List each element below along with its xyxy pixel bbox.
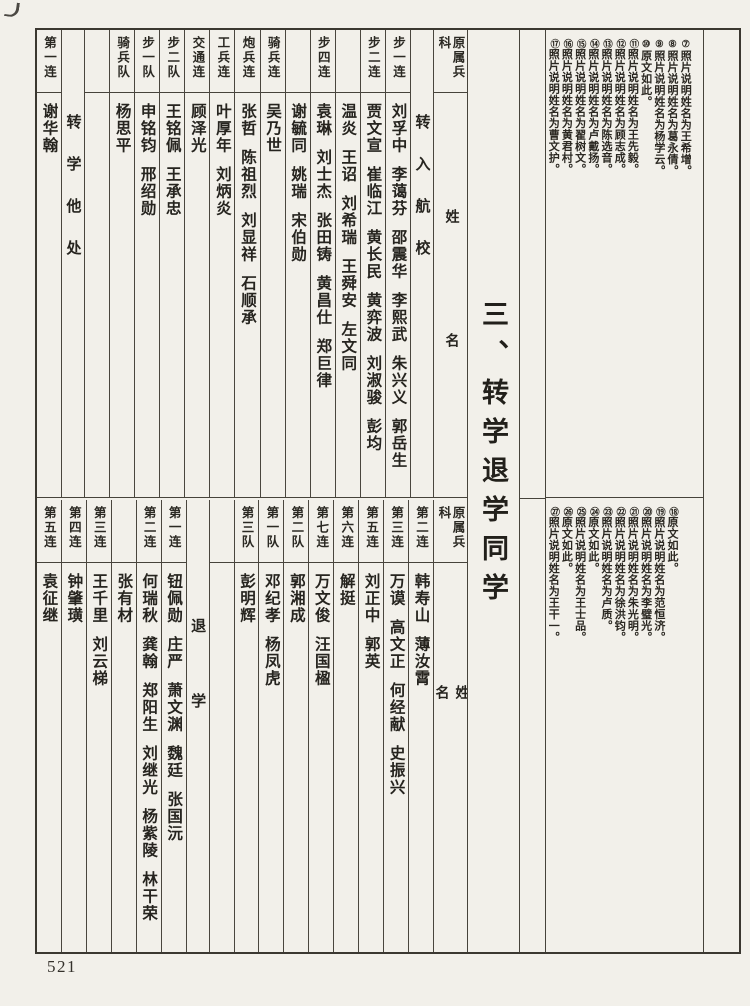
spacer-divider: [520, 498, 545, 499]
names-list: 王千里刘云梯: [90, 573, 107, 953]
student-name: 贾文宣: [364, 103, 381, 154]
book-page: 原属兵科姓名转入航校步一连刘孚中李蔼芬邵震华李熙武朱兴义郭岳生步二连贾文宣崔临江…: [0, 0, 750, 1006]
student-name: 刘孚中: [389, 103, 406, 154]
unit-column: 步四连袁琳刘士杰张田铸黄昌仕郑巨律: [310, 30, 335, 497]
unit-header: 步二队: [165, 36, 179, 92]
unit-names-cell: 顾泽光: [185, 93, 209, 497]
student-name: 钟肇璜: [65, 573, 82, 624]
unit-names-cell: 谢华翰: [37, 93, 61, 497]
unit-header-cell: 第二连: [409, 500, 433, 563]
unit-names-cell: 吴乃世: [261, 93, 285, 497]
table-frame: 原属兵科姓名转入航校步一连刘孚中李蔼芬邵震华李熙武朱兴义郭岳生步二连贾文宣崔临江…: [35, 28, 741, 954]
names-list: 张有材: [115, 573, 132, 953]
footnote: ⑱原文如此。: [665, 507, 678, 683]
unit-names-cell: 贾文宣崔临江黄长民黄弈波刘淑骏彭均: [361, 93, 385, 497]
footnote-block-bottom: ⑱原文如此。⑲照片说明姓名为范恒济。⑳照片说明姓名为李璧光。㉑照片说明姓名为朱光…: [546, 498, 703, 954]
footnote: ⑦照片说明姓名为王希增。: [678, 39, 691, 215]
unit-names-cell: 杨思平: [110, 93, 134, 497]
footnote-column-group: ⑦照片说明姓名为王希增。⑧照片说明姓名为葛永倩。⑨照片说明姓名为杨学云。⑩原文如…: [546, 30, 696, 215]
empty-body-cell: [210, 563, 234, 953]
names-list: 刘正中郭英: [363, 573, 380, 953]
unit-header: 第二连: [414, 506, 428, 562]
names-list: 彭明辉: [238, 573, 255, 953]
student-name: 薄汝霄: [413, 636, 430, 687]
student-name: 张田铸: [314, 212, 331, 263]
footnote: ⑭照片说明姓名为卢戴扬。: [586, 39, 599, 215]
unit-header: 第三连: [92, 506, 106, 562]
student-name: 邢绍勋: [139, 166, 156, 217]
student-name: 钮佩勋: [165, 573, 182, 624]
unit-column: 第七连万文俊汪国楹: [308, 500, 333, 953]
unit-column: 温炎王诏刘希瑞王舜安左文同: [335, 30, 360, 497]
student-name: 谢毓同: [289, 103, 306, 154]
footnote-number: ㉔: [588, 507, 598, 517]
unit-column: 步二连贾文宣崔临江黄长民黄弈波刘淑骏彭均: [360, 30, 385, 497]
unit-column: 第一队邓纪孝杨凤虎: [258, 500, 283, 953]
footnote: ⑨照片说明姓名为杨学云。: [652, 39, 665, 215]
unit-header: 第三连: [389, 506, 403, 562]
unit-column: 炮兵连张哲陈祖烈刘显祥石顺承: [234, 30, 259, 497]
names-list: 何瑞秋龚翰郑阳生刘继光杨紫陵林干荣: [140, 573, 157, 953]
student-name: 韩寿山: [413, 573, 430, 624]
unit-header: 骑兵连: [266, 36, 280, 92]
student-name: 万谟: [388, 573, 405, 607]
student-name: 张有材: [115, 573, 132, 624]
unit-header-cell: 第三连: [384, 500, 408, 563]
names-list: 郭湘成: [288, 573, 305, 953]
unit-header-cell: 第二连: [137, 500, 161, 563]
student-name: 左文同: [339, 321, 356, 372]
spacer-column-cell: [84, 30, 109, 497]
names-list: 解挺: [338, 573, 355, 953]
unit-header: 第一队: [264, 506, 278, 562]
unit-column: 第五连袁征继: [37, 500, 61, 953]
footnote-number: ⑮: [575, 39, 585, 49]
unit-header: 第四连: [67, 506, 81, 562]
unit-names-cell: 钟肇璜: [62, 563, 86, 953]
unit-names-cell: 叶厚年刘炳炎: [210, 93, 234, 497]
footnote-text: 照片说明姓名为顾志成。: [613, 49, 625, 176]
student-name: 王诏: [339, 149, 356, 183]
branch-header-cell: 原属兵科: [434, 500, 467, 563]
unit-header: 炮兵连: [240, 36, 254, 92]
unit-header: 步一队: [140, 36, 154, 92]
withdraw-table: 原属兵科姓名第二连韩寿山薄汝霄第三连万谟高文正何经献史振兴第五连刘正中郭英第六连…: [37, 500, 467, 953]
corner-artifact: [4, 1, 20, 18]
names-list: 万文俊汪国楹: [313, 573, 330, 953]
unit-header-cell: 第四连: [62, 500, 86, 563]
unit-header-cell: 步一连: [386, 30, 410, 93]
student-name: 申铭钧: [139, 103, 156, 154]
unit-names-cell: 谢毓同姚瑞宋伯勋: [286, 93, 310, 497]
student-name: 解挺: [338, 573, 355, 607]
student-name: 崔临江: [364, 166, 381, 217]
student-name: 杨思平: [114, 103, 131, 154]
footnote-number: ⑩: [641, 39, 651, 50]
footnote: ⑪照片说明姓名为王先毅。: [625, 39, 638, 215]
names-list: 张哲陈祖烈刘显祥石顺承: [239, 103, 256, 497]
footnote-text: 照片说明姓名为徐洪钧。: [613, 517, 625, 644]
unit-header-cell: 工兵连: [210, 30, 234, 93]
footnote: ⑮照片说明姓名为翟树文。: [572, 39, 585, 215]
footnote-text: 原文如此。: [560, 517, 572, 575]
unit-names-cell: 钮佩勋庄严萧文渊魏廷张国沅: [162, 563, 186, 953]
names-list: 申铭钧邢绍勋: [139, 103, 156, 497]
student-name: 龚翰: [140, 636, 157, 670]
section-label: 转学他处: [62, 30, 83, 497]
student-name: 高文正: [388, 619, 405, 670]
names-list: 袁征继: [40, 573, 57, 953]
names-list: 刘孚中李蔼芬邵震华李熙武朱兴义郭岳生: [389, 103, 406, 497]
unit-names-cell: 万谟高文正何经献史振兴: [384, 563, 408, 953]
unit-names-cell: 申铭钧邢绍勋: [135, 93, 159, 497]
section-label: 转入航校: [412, 30, 433, 497]
student-name: 林干荣: [140, 871, 157, 922]
unit-header-cell: 第一连: [162, 500, 186, 563]
unit-header: 第三队: [239, 506, 253, 562]
unit-header: 第六连: [339, 506, 353, 562]
student-name: 张哲: [239, 103, 256, 137]
names-list: 贾文宣崔临江黄长民黄弈波刘淑骏彭均: [364, 103, 381, 497]
empty-header-cell: [210, 500, 234, 563]
name-label-cell: 姓名: [434, 563, 467, 953]
unit-column: 交通连顾泽光: [184, 30, 209, 497]
student-name: 汪国楹: [313, 636, 330, 687]
student-name: 彭均: [364, 418, 381, 452]
footnote-number: ㉑: [627, 507, 637, 517]
student-name: 宋伯勋: [289, 212, 306, 263]
student-name: 庄严: [165, 636, 182, 670]
student-name: 郑阳生: [140, 682, 157, 733]
unit-header-cell: 骑兵连: [261, 30, 285, 93]
student-name: 邵震华: [389, 229, 406, 280]
unit-header: 工兵连: [215, 36, 229, 92]
student-name: 郭英: [363, 636, 380, 670]
student-name: 王舜安: [339, 258, 356, 309]
student-name: 黄弈波: [364, 292, 381, 343]
student-name: 刘继光: [140, 745, 157, 796]
footnote: ㉖原文如此。: [559, 507, 572, 683]
name-label-text: 姓名: [434, 563, 467, 953]
unit-header-cell: 步一队: [135, 30, 159, 93]
empty-header-cell: [85, 30, 109, 93]
names-list: 钟肇璜: [65, 573, 82, 953]
footnote: ⑩原文如此。: [638, 39, 651, 215]
unit-header: 骑兵队: [115, 36, 129, 92]
unit-names-cell: 袁征继: [37, 563, 61, 953]
unit-header: 第五连: [42, 506, 56, 562]
footnote: ⑯照片说明姓名为黄君村。: [559, 39, 572, 215]
footnote: ㉓照片说明姓名为卢质。: [599, 507, 612, 683]
unit-column: 第三连万谟高文正何经献史振兴: [383, 500, 408, 953]
unit-column: 第三连王千里刘云梯: [86, 500, 111, 953]
footnote-number: ⑦: [680, 39, 690, 50]
unit-names-cell: 韩寿山薄汝霄: [409, 563, 433, 953]
unit-header-cell: 第五连: [359, 500, 383, 563]
footnote-number: ⑰: [548, 39, 558, 49]
names-list: 韩寿山薄汝霄: [413, 573, 430, 953]
footnote-number: ⑲: [654, 507, 664, 517]
unit-header-cell: 第六连: [334, 500, 358, 563]
name-label-text: 姓名: [441, 93, 461, 497]
footnote-number: ⑭: [588, 39, 598, 49]
footnote-number: ㉗: [548, 507, 558, 517]
footnote: ⑲照片说明姓名为范恒济。: [652, 507, 665, 683]
student-name: 叶厚年: [214, 103, 231, 154]
footnote-text: 照片说明姓名为卢质。: [600, 517, 612, 632]
names-list: 谢毓同姚瑞宋伯勋: [289, 103, 306, 497]
transfer-table: 原属兵科姓名转入航校步一连刘孚中李蔼芬邵震华李熙武朱兴义郭岳生步二连贾文宣崔临江…: [37, 30, 467, 498]
footnote-number: ⑨: [654, 39, 664, 50]
student-name: 黄长民: [364, 229, 381, 280]
student-name: 刘云梯: [90, 636, 107, 687]
unit-header: 第五连: [364, 506, 378, 562]
footnote-number: ㉖: [561, 507, 571, 517]
footnote-number: ⑱: [667, 507, 677, 517]
unit-header: 第二连: [142, 506, 156, 562]
names-list: 邓纪孝杨凤虎: [263, 573, 280, 953]
unit-column: 第五连刘正中郭英: [358, 500, 383, 953]
unit-names-cell: 张哲陈祖烈刘显祥石顺承: [235, 93, 259, 497]
footnote-number: ⑧: [667, 39, 677, 50]
unit-names-cell: 袁琳刘士杰张田铸黄昌仕郑巨律: [311, 93, 335, 497]
student-name: 李蔼芬: [389, 166, 406, 217]
unit-names-cell: 张有材: [112, 563, 136, 953]
unit-header: 第一连: [42, 36, 56, 92]
footnote-text: 照片说明姓名为黄君村。: [560, 49, 572, 176]
student-name: 刘正中: [363, 573, 380, 624]
unit-header: 第二队: [289, 506, 303, 562]
unit-column: 第二队郭湘成: [283, 500, 308, 953]
footnote: ㉕照片说明姓名为王士品。: [572, 507, 585, 683]
footnote-text: 照片说明姓名为葛永倩。: [666, 50, 678, 177]
footnote-text: 照片说明姓名为杨学云。: [653, 50, 665, 177]
student-name: 杨紫陵: [140, 808, 157, 859]
student-name: 吴乃世: [264, 103, 281, 154]
unit-column: 骑兵队杨思平: [109, 30, 134, 497]
student-name: 彭明辉: [238, 573, 255, 624]
legend-column: 原属兵科姓名: [433, 500, 467, 953]
unit-names-cell: 王铭佩王承忠: [160, 93, 184, 497]
footnote-block-top: ⑦照片说明姓名为王希增。⑧照片说明姓名为葛永倩。⑨照片说明姓名为杨学云。⑩原文如…: [546, 30, 703, 498]
unit-header-cell: 第三队: [235, 500, 259, 563]
student-name: 谢华翰: [40, 103, 57, 154]
names-list: 谢华翰: [40, 103, 57, 497]
spacer-column-cell: [209, 500, 234, 953]
unit-header: 步四连: [316, 36, 330, 92]
footnote-text: 照片说明姓名为王干一。: [547, 517, 559, 644]
unit-header-cell: 第一队: [259, 500, 283, 563]
unit-header-cell: 交通连: [185, 30, 209, 93]
unit-header-cell: 步四连: [311, 30, 335, 93]
unit-header: 步二连: [366, 36, 380, 92]
student-name: 李熙武: [389, 292, 406, 343]
tables-region: 原属兵科姓名转入航校步一连刘孚中李蔼芬邵震华李熙武朱兴义郭岳生步二连贾文宣崔临江…: [37, 30, 467, 952]
student-name: 何经献: [388, 682, 405, 733]
student-name: 王承忠: [164, 166, 181, 217]
unit-header-cell: 骑兵队: [110, 30, 134, 93]
unit-column: 第三队彭明辉: [234, 500, 259, 953]
student-name: 温炎: [339, 103, 356, 137]
footnote-text: 照片说明姓名为陈选音。: [600, 49, 612, 176]
section-title: 三、转学退学同学: [474, 30, 513, 952]
unit-names-cell: 刘正中郭英: [359, 563, 383, 953]
footnote-text: 照片说明姓名为卢戴扬。: [587, 49, 599, 176]
footnote: ⑬照片说明姓名为陈选音。: [599, 39, 612, 215]
unit-column: 第一连钮佩勋庄严萧文渊魏廷张国沅: [161, 500, 186, 953]
footnote-column-group: ⑱原文如此。⑲照片说明姓名为范恒济。⑳照片说明姓名为李璧光。㉑照片说明姓名为朱光…: [546, 498, 683, 683]
footnote-text: 照片说明姓名为王士品。: [574, 517, 586, 644]
spacer-column: [519, 30, 545, 952]
unit-names-cell: 温炎王诏刘希瑞王舜安左文同: [336, 93, 360, 497]
student-name: 刘士杰: [314, 149, 331, 200]
names-list: 袁琳刘士杰张田铸黄昌仕郑巨律: [314, 103, 331, 497]
footnote-text: 照片说明姓名为李璧光。: [640, 517, 652, 644]
footnote: ㉔原文如此。: [586, 507, 599, 683]
footnote-text: 原文如此。: [666, 517, 678, 575]
unit-column: 张有材: [111, 500, 136, 953]
names-list: 杨思平: [114, 103, 131, 497]
blank-margin-column: [703, 30, 743, 952]
footnote-number: ㉕: [575, 507, 585, 517]
student-name: 郭岳生: [389, 418, 406, 469]
footnote: ⑰照片说明姓名为曹文护。: [546, 39, 559, 215]
unit-header-cell: [336, 30, 360, 93]
footnote: ⑧照片说明姓名为葛永倩。: [665, 39, 678, 215]
unit-column: 谢毓同姚瑞宋伯勋: [285, 30, 310, 497]
student-name: 刘希瑞: [339, 195, 356, 246]
unit-column: 第六连解挺: [333, 500, 358, 953]
legend-column: 原属兵科姓名: [433, 30, 467, 497]
footnote-text: 照片说明姓名为翟树文。: [574, 49, 586, 176]
student-name: 黄昌仕: [314, 275, 331, 326]
unit-names-cell: 刘孚中李蔼芬邵震华李熙武朱兴义郭岳生: [386, 93, 410, 497]
section-label-cell: 转入航校: [411, 30, 433, 497]
footnote-number: ⑫: [614, 39, 624, 49]
student-name: 王铭佩: [164, 103, 181, 154]
unit-header-cell: [286, 30, 310, 93]
student-name: 袁琳: [314, 103, 331, 137]
student-name: 王千里: [90, 573, 107, 624]
branch-header-cell: 原属兵科: [434, 30, 467, 93]
student-name: 萧文渊: [165, 682, 182, 733]
footnote: ⑳照片说明姓名为李璧光。: [638, 507, 651, 683]
footnote-number: ⑪: [627, 39, 637, 49]
student-name: 朱兴义: [389, 355, 406, 406]
unit-column: 第一连谢华翰: [37, 30, 61, 497]
unit-names-cell: 彭明辉: [235, 563, 259, 953]
section-label-cell: 退学: [187, 500, 209, 953]
student-name: 史振兴: [388, 745, 405, 796]
title-column: 三、转学退学同学: [467, 30, 519, 952]
unit-names-cell: 解挺: [334, 563, 358, 953]
student-name: 石顺承: [239, 275, 256, 326]
footnote-number: ㉒: [614, 507, 624, 517]
footnote-number: ⑬: [601, 39, 611, 49]
footnote-text: 原文如此。: [640, 50, 652, 108]
unit-column: 第二连何瑞秋龚翰郑阳生刘继光杨紫陵林干荣: [136, 500, 161, 953]
unit-names-cell: 王千里刘云梯: [87, 563, 111, 953]
student-name: 刘显祥: [239, 212, 256, 263]
unit-header: 第七连: [314, 506, 328, 562]
names-list: 吴乃世: [264, 103, 281, 497]
branch-header-text: 原属兵科: [437, 506, 465, 562]
unit-header-cell: 第三连: [87, 500, 111, 563]
footnote-text: 照片说明姓名为王希增。: [679, 50, 691, 177]
unit-header: 第一连: [167, 506, 181, 562]
student-name: 刘淑骏: [364, 355, 381, 406]
footnote: ⑫照片说明姓名为顾志成。: [612, 39, 625, 215]
unit-column: 步二队王铭佩王承忠: [159, 30, 184, 497]
names-list: 王铭佩王承忠: [164, 103, 181, 497]
student-name: 张国沅: [165, 791, 182, 842]
empty-body-cell: [85, 93, 109, 497]
names-list: 顾泽光: [189, 103, 206, 497]
unit-header-cell: 炮兵连: [235, 30, 259, 93]
names-list: 万谟高文正何经献史振兴: [388, 573, 405, 953]
unit-column: 工兵连叶厚年刘炳炎: [209, 30, 234, 497]
unit-column: 第二连韩寿山薄汝霄: [408, 500, 433, 953]
footnote-number: ㉓: [601, 507, 611, 517]
unit-names-cell: 郭湘成: [284, 563, 308, 953]
footnote-number: ⑯: [561, 39, 571, 49]
name-label-cell: 姓名: [434, 93, 467, 497]
footnote: ㉒照片说明姓名为徐洪钧。: [612, 507, 625, 683]
footnote-text: 照片说明姓名为范恒济。: [653, 517, 665, 644]
unit-names-cell: 何瑞秋龚翰郑阳生刘继光杨紫陵林干荣: [137, 563, 161, 953]
student-name: 万文俊: [313, 573, 330, 624]
section-label-column: 转入航校: [410, 30, 433, 497]
unit-header-cell: 第七连: [309, 500, 333, 563]
footnote: ㉑照片说明姓名为朱光明。: [625, 507, 638, 683]
student-name: 陈祖烈: [239, 149, 256, 200]
footnote-text: 照片说明姓名为曹文护。: [547, 49, 559, 176]
page-number: 521: [47, 957, 77, 977]
footnote-number: ⑳: [641, 507, 651, 517]
unit-header: 交通连: [190, 36, 204, 92]
student-name: 袁征继: [40, 573, 57, 624]
unit-header-cell: 第二队: [284, 500, 308, 563]
student-name: 郑巨律: [314, 338, 331, 389]
names-list: 温炎王诏刘希瑞王舜安左文同: [339, 103, 356, 497]
unit-names-cell: 万文俊汪国楹: [309, 563, 333, 953]
student-name: 刘炳炎: [214, 166, 231, 217]
footnote-text: 照片说明姓名为王先毅。: [626, 49, 638, 176]
section-label: 退学: [187, 500, 208, 953]
names-list: 叶厚年刘炳炎: [214, 103, 231, 497]
unit-column: 步一队申铭钧邢绍勋: [134, 30, 159, 497]
unit-header: 步一连: [391, 36, 405, 92]
unit-header-cell: 第一连: [37, 30, 61, 93]
footnote-region: ⑦照片说明姓名为王希增。⑧照片说明姓名为葛永倩。⑨照片说明姓名为杨学云。⑩原文如…: [545, 30, 703, 952]
unit-header-cell: 第五连: [37, 500, 61, 563]
section-label-cell: 转学他处: [62, 30, 84, 497]
student-name: 何瑞秋: [140, 573, 157, 624]
unit-header-cell: 步二连: [361, 30, 385, 93]
unit-column: 第四连钟肇璜: [61, 500, 86, 953]
unit-header-cell: 步二队: [160, 30, 184, 93]
unit-names-cell: 邓纪孝杨凤虎: [259, 563, 283, 953]
section-label-column: 退学: [186, 500, 209, 953]
footnote-text: 原文如此。: [587, 517, 599, 575]
footnote: ㉗照片说明姓名为王干一。: [546, 507, 559, 683]
footnote-text: 照片说明姓名为朱光明。: [626, 517, 638, 644]
unit-column: 骑兵连吴乃世: [260, 30, 285, 497]
student-name: 邓纪孝: [263, 573, 280, 624]
branch-header-text: 原属兵科: [437, 36, 465, 92]
student-name: 魏廷: [165, 745, 182, 779]
unit-column: 步一连刘孚中李蔼芬邵震华李熙武朱兴义郭岳生: [385, 30, 410, 497]
